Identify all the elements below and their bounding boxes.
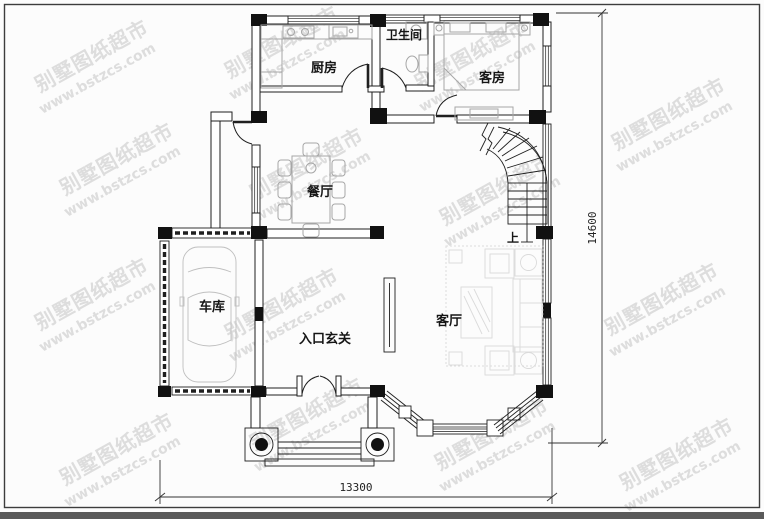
stair-up-label: 上 — [507, 230, 519, 245]
dimension-height-label: 14600 — [586, 211, 599, 244]
bathroom-door-swing — [382, 68, 406, 88]
entry-door-right-leaf — [336, 376, 341, 396]
kitchen-label: 厨房 — [311, 60, 337, 76]
kitchen-door-swing — [342, 64, 368, 88]
footer-bar — [0, 512, 764, 519]
entry-door-left-leaf — [297, 376, 302, 396]
living-room-furniture — [446, 246, 543, 375]
dimension-width-label: 13300 — [339, 481, 372, 494]
side-entry-door-swing — [233, 122, 252, 144]
entry-door-left-swing — [302, 376, 319, 394]
guest-room-label: 客房 — [479, 70, 505, 86]
tv-cabinet — [384, 278, 395, 352]
floor-plan-drawing: 别墅图纸超市www.bstzcs.com 别墅图纸超市www.bstzcs.co… — [0, 0, 764, 519]
rug — [446, 246, 543, 366]
armchair-top — [485, 249, 514, 278]
porch-column-right — [371, 438, 384, 451]
armchair-bottom — [485, 346, 514, 375]
sofa — [513, 279, 542, 352]
dining-room-label: 餐厅 — [306, 184, 333, 200]
watermark-layer: 别墅图纸超市www.bstzcs.com 别墅图纸超市www.bstzcs.co… — [23, 1, 746, 516]
toilet — [406, 56, 418, 72]
side-table-top — [515, 249, 542, 276]
garage-label: 车库 — [199, 299, 225, 315]
side-table-bottom — [515, 347, 542, 374]
floor-plan-page: 别墅图纸超市www.bstzcs.com 别墅图纸超市www.bstzcs.co… — [0, 0, 764, 519]
dimension-right: 14600 — [548, 9, 608, 447]
entrance-foyer-label: 入口玄关 — [299, 331, 351, 347]
living-room-label: 客厅 — [436, 313, 462, 329]
bathroom-label: 卫生间 — [386, 27, 422, 42]
porch-column-left — [255, 438, 268, 451]
nightstand-left — [434, 22, 444, 35]
